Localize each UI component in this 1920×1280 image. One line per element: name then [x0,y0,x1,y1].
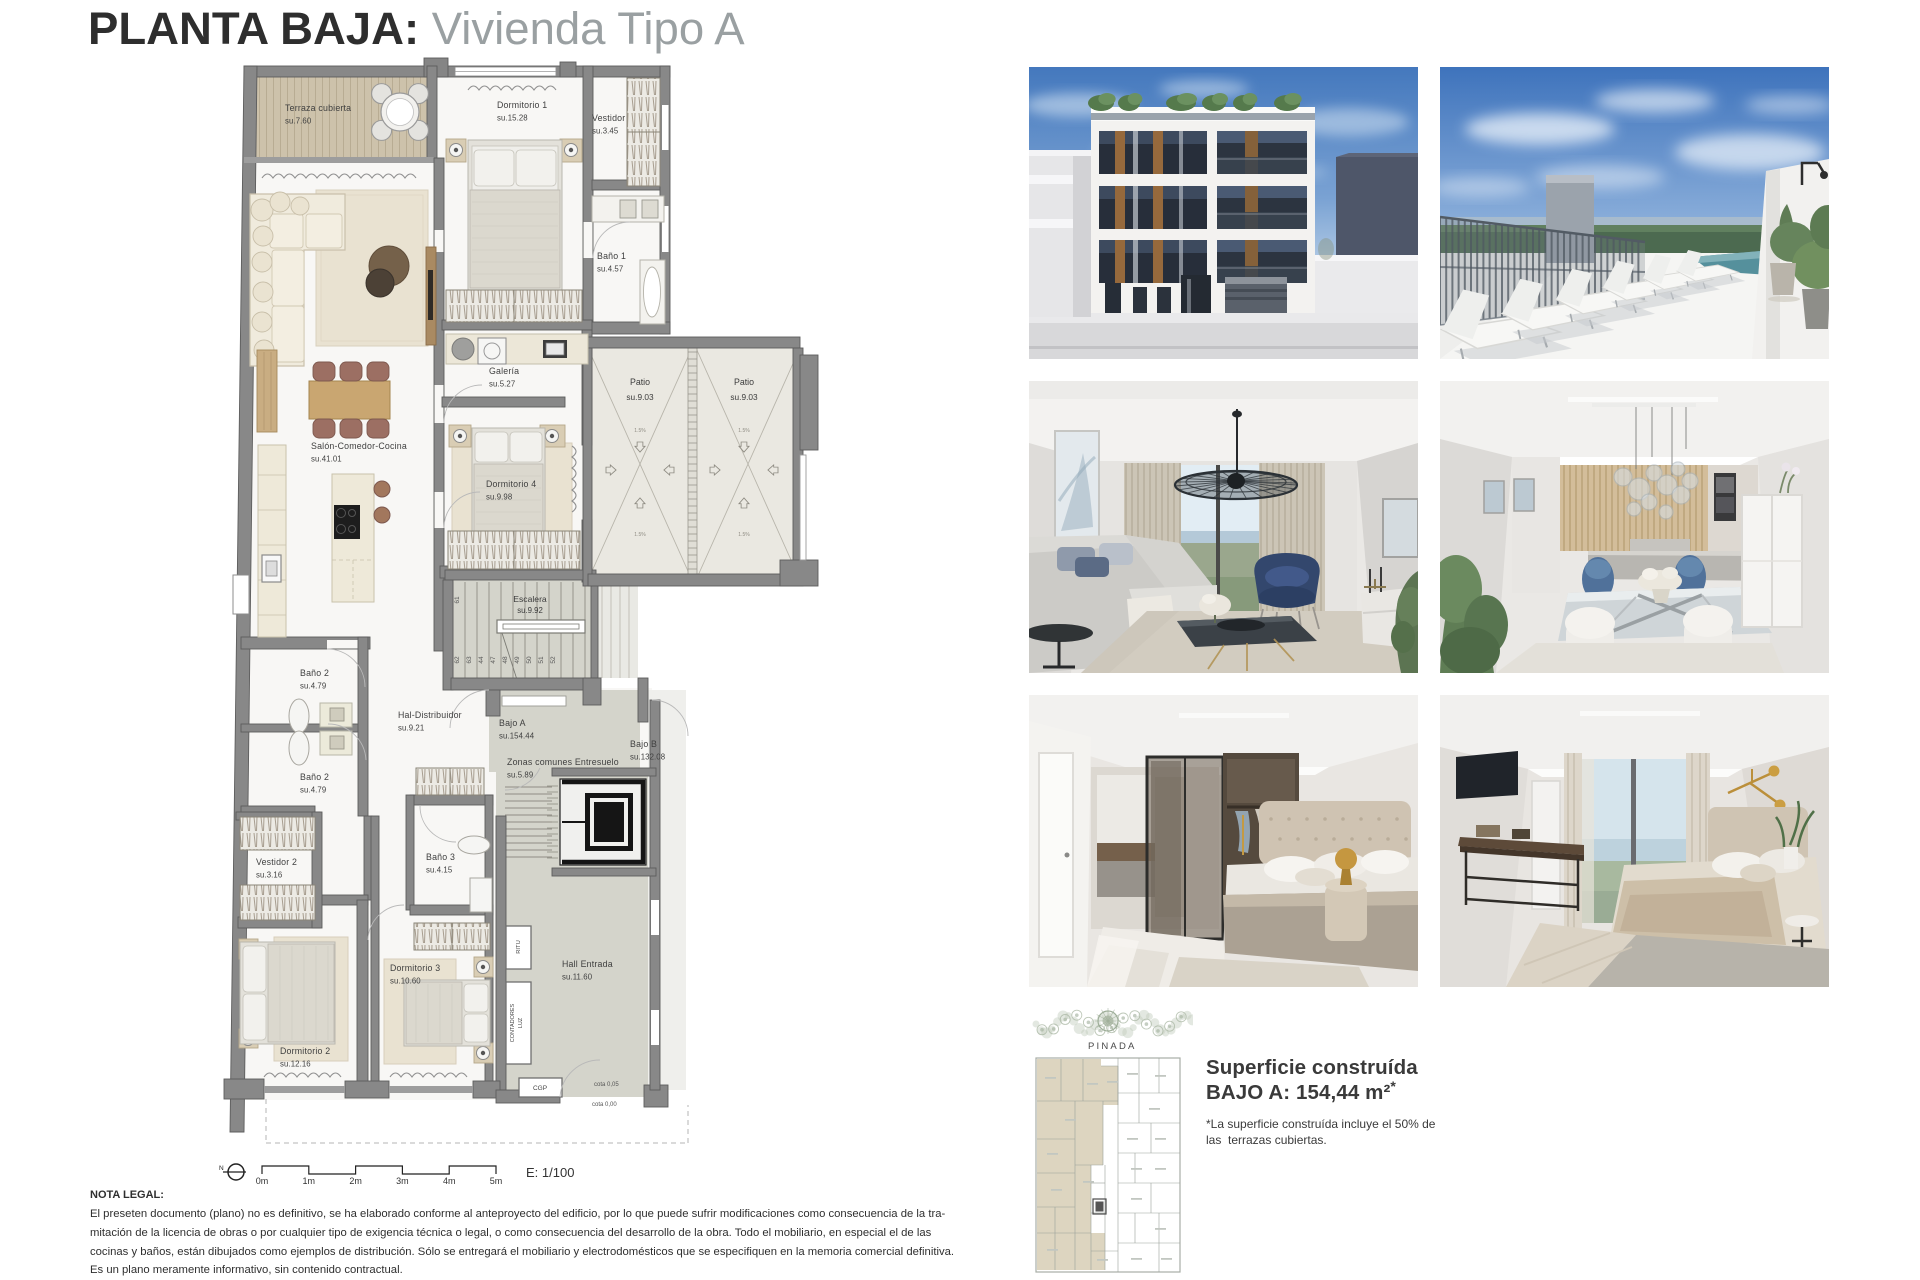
svg-text:Baño 2: Baño 2 [300,668,329,678]
svg-text:0m: 0m [256,1176,269,1186]
svg-text:su.41.01: su.41.01 [311,455,342,464]
svg-text:RITU: RITU [516,940,522,954]
svg-text:Zonas comunes Entresuelo: Zonas comunes Entresuelo [507,757,619,767]
svg-text:su.4.79: su.4.79 [300,786,326,795]
svg-text:su.7.60: su.7.60 [285,117,312,126]
svg-text:E: 1/100: E: 1/100 [526,1165,574,1180]
svg-text:Bajo A: Bajo A [499,718,526,728]
svg-text:44: 44 [478,656,485,664]
svg-text:Baño 1: Baño 1 [597,251,626,261]
svg-text:1.5%: 1.5% [738,532,750,538]
svg-text:CGP: CGP [533,1085,547,1092]
svg-text:2m: 2m [349,1176,362,1186]
svg-text:1m: 1m [303,1176,316,1186]
svg-text:cota 0,00: cota 0,00 [592,1102,617,1108]
svg-text:5m: 5m [490,1176,503,1186]
svg-text:su.5.27: su.5.27 [489,380,515,389]
svg-text:61: 61 [454,596,461,604]
svg-text:su.132.08: su.132.08 [630,753,665,762]
svg-text:CONTADORES: CONTADORES [510,1003,516,1042]
svg-text:Baño 3: Baño 3 [426,852,455,862]
svg-text:Vestidor 2: Vestidor 2 [256,857,297,867]
svg-text:4m: 4m [443,1176,456,1186]
svg-text:Patio: Patio [630,377,650,387]
svg-text:Hall Entrada: Hall Entrada [562,959,613,969]
svg-text:su.9.03: su.9.03 [730,392,758,402]
svg-text:Baño 2: Baño 2 [300,772,329,782]
svg-text:47: 47 [490,656,497,664]
svg-text:su.9.98: su.9.98 [486,493,512,502]
svg-text:cota 0,05: cota 0,05 [594,1082,619,1088]
svg-text:Bajo B: Bajo B [630,739,657,749]
svg-text:su.9.03: su.9.03 [626,392,654,402]
svg-text:Vestidor: Vestidor [592,113,625,123]
svg-text:su.9.21: su.9.21 [398,724,424,733]
svg-text:Terraza cubierta: Terraza cubierta [285,103,351,113]
svg-text:1.5%: 1.5% [634,532,646,538]
svg-text:su.3.16: su.3.16 [256,871,282,880]
svg-text:Galería: Galería [489,366,519,376]
svg-text:su.4.57: su.4.57 [597,265,623,274]
svg-text:su.154.44: su.154.44 [499,732,535,741]
svg-text:su.9.92: su.9.92 [517,606,543,615]
svg-text:su.10.60: su.10.60 [390,977,421,986]
svg-text:51: 51 [538,656,545,664]
svg-text:3m: 3m [396,1176,409,1186]
svg-text:Hal-Distribuidor: Hal-Distribuidor [398,710,462,720]
svg-text:su.15.28: su.15.28 [497,114,528,123]
svg-text:1.5%: 1.5% [634,428,646,434]
svg-text:63: 63 [466,656,473,664]
svg-text:62: 62 [454,656,461,664]
svg-text:su.3.45: su.3.45 [592,127,619,136]
svg-text:Dormitorio 1: Dormitorio 1 [497,100,547,110]
svg-text:Dormitorio 2: Dormitorio 2 [280,1046,330,1056]
svg-text:su.11.60: su.11.60 [562,973,593,982]
svg-text:Patio: Patio [734,377,754,387]
svg-text:50: 50 [526,656,533,664]
svg-text:Dormitorio 3: Dormitorio 3 [390,963,440,973]
svg-text:48: 48 [502,656,509,664]
svg-text:52: 52 [550,656,557,664]
svg-text:Salón-Comedor-Cocina: Salón-Comedor-Cocina [311,441,407,451]
svg-text:Dormitorio 4: Dormitorio 4 [486,479,536,489]
svg-text:49: 49 [514,656,521,664]
svg-text:su.4.79: su.4.79 [300,682,326,691]
svg-text:LUZ: LUZ [518,1017,524,1028]
svg-text:1.5%: 1.5% [738,428,750,434]
svg-text:Escalera: Escalera [513,594,547,604]
svg-text:su.4.15: su.4.15 [426,866,453,875]
svg-text:su.12.16: su.12.16 [280,1060,311,1069]
svg-text:su.5.89: su.5.89 [507,771,533,780]
svg-text:N: N [219,1165,224,1172]
